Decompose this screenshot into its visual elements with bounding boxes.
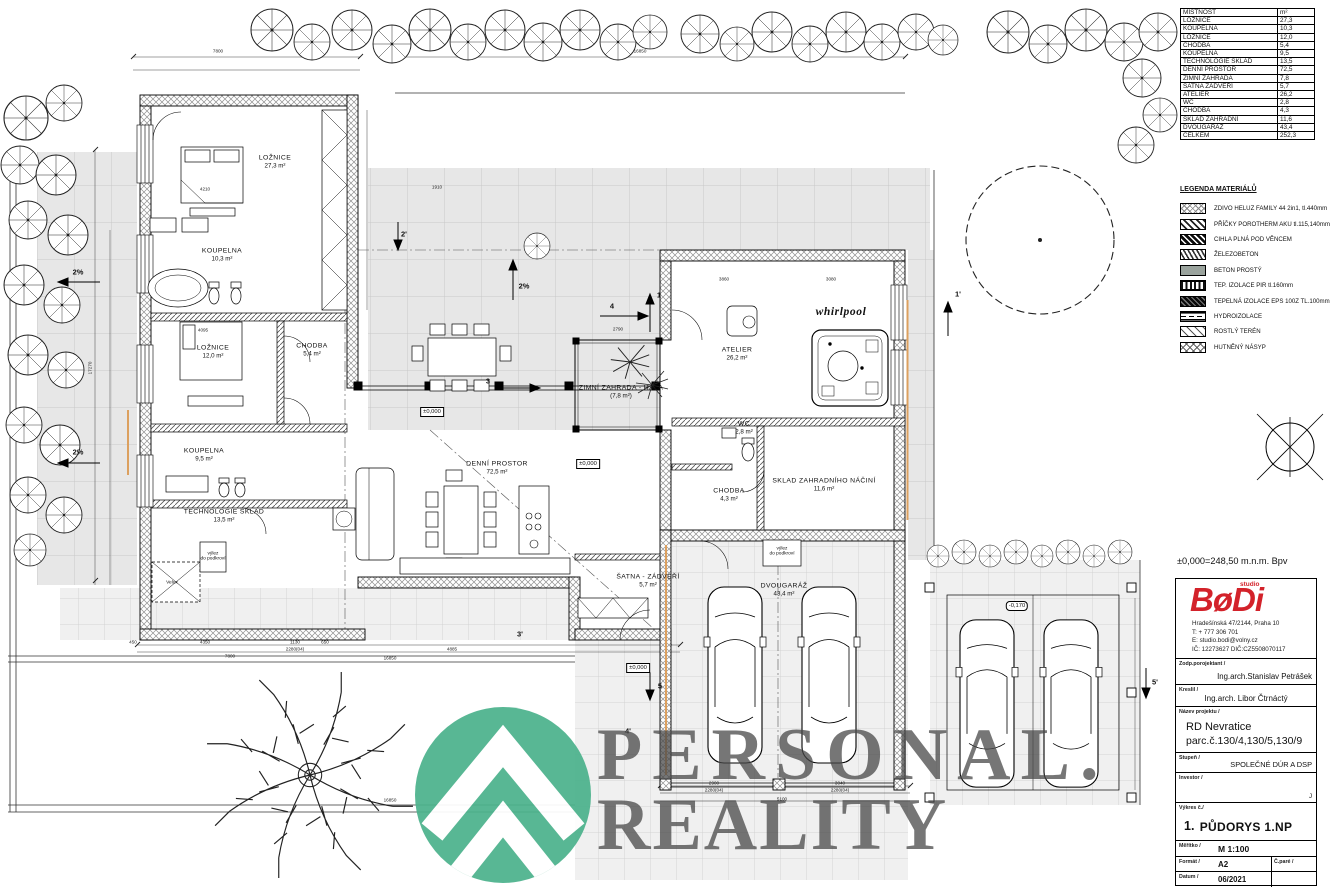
- room-area-table: MÍSTNOST m² LOŽNICE27,3 KOUPELNA10,3 LOŽ…: [1180, 8, 1315, 140]
- legend-title: LEGENDA MATERIÁLŮ: [1180, 186, 1340, 193]
- dimension-label: 17270: [88, 362, 93, 375]
- elevation-marker: ±0,000: [576, 459, 600, 469]
- slope-label: 2%: [73, 448, 84, 457]
- dimension-label: 650: [321, 640, 329, 645]
- titleblock-stage-row: Stupeň / SPOLEČNÉ DÚR A DSP: [1176, 753, 1316, 773]
- section-marker: 5': [1152, 678, 1158, 687]
- section-marker: 3': [517, 630, 523, 639]
- titleblock-format-row: Formát / A2 Č.paré /: [1176, 857, 1316, 872]
- whirlpool-tub: [812, 330, 888, 406]
- legend-item: ROSTLÝ TERÉN: [1180, 324, 1340, 339]
- dimension-label: 3860: [719, 277, 729, 282]
- titleblock-scale-row: Měřítko / M 1:100: [1176, 841, 1316, 857]
- titleblock-investor-row: Investor / J: [1176, 773, 1316, 803]
- section-marker: 3: [486, 377, 490, 386]
- legend-item: ZDIVO HELUZ FAMILY 44 2in1, tl.440mm: [1180, 201, 1340, 216]
- titleblock-designer-row: Zodp.porojektant / Ing.arch.Stanislav Pe…: [1176, 659, 1316, 685]
- slope-label: 2%: [73, 268, 84, 277]
- hatch-swatch-icon: [1180, 311, 1206, 322]
- hatch-swatch-icon: [1180, 296, 1206, 307]
- studio-address: Hradešínská 47/2144, Praha 10 T: + 777 3…: [1192, 620, 1285, 654]
- legend-item: CIHLA PLNÁ POD VĚNCEM: [1180, 232, 1340, 247]
- dimension-label: 16850: [384, 656, 397, 661]
- room-label-loznice-27: LOŽNICE27,3 m²: [259, 155, 291, 170]
- table-header-room: MÍSTNOST: [1181, 9, 1278, 17]
- table-row: DVOUGARÁŽ43,4: [1181, 123, 1315, 131]
- room-label-dvougaraz: DVOUGARÁŽ43,4 m²: [761, 583, 808, 598]
- table-row: LOŽNICE27,3: [1181, 17, 1315, 25]
- hatch-swatch-icon: [1180, 234, 1206, 245]
- titleblock-drawing-row: Výkres č./ 1. PŮDORYS 1.NP: [1176, 803, 1316, 841]
- elevation-marker: ±0,000: [626, 663, 650, 673]
- datum-elevation-note: ±0,000=248,50 m.n.m. Bpv: [1177, 556, 1288, 566]
- legend-item: PŘÍČKY POROTHERM AKU tl.115,140mm: [1180, 216, 1340, 231]
- watermark-line-2: REALITY: [597, 783, 948, 868]
- drawing-title: PŮDORYS 1.NP: [1176, 820, 1316, 834]
- legend-item: BETON PROSTÝ: [1180, 263, 1340, 278]
- large-tree-icon: [966, 166, 1114, 314]
- room-label-sklad: SKLAD ZAHRADNÍHO NÁČINÍ11,6 m²: [772, 478, 875, 493]
- dimension-label: 4350: [200, 640, 210, 645]
- table-row: SKLAD ZAHRADNÍ11,6: [1181, 115, 1315, 123]
- dimension-label: 450: [129, 640, 137, 645]
- table-row: CHODBA5,4: [1181, 41, 1315, 49]
- hatch-swatch-icon: [1180, 280, 1206, 291]
- dimension-label: 7800: [225, 654, 235, 659]
- table-total-row: CELKEM252,3: [1181, 132, 1315, 140]
- dimension-label: 1130: [290, 640, 300, 645]
- legend-item: ŽELEZOBETON: [1180, 247, 1340, 262]
- room-label-loznice-12: LOŽNICE12,0 m²: [197, 345, 229, 360]
- table-row: CHODBA4,3: [1181, 107, 1315, 115]
- legend-item: TEP. IZOLACE PIR tl.160mm: [1180, 278, 1340, 293]
- room-label-wc: WC2,8 m²: [735, 421, 753, 436]
- section-marker: 1: [657, 291, 661, 300]
- section-marker: 4: [610, 302, 614, 311]
- section-marker: 1': [955, 290, 961, 299]
- whirlpool-label: whirlpool: [816, 306, 867, 318]
- room-label-koupelna-10: KOUPELNA10,3 m²: [202, 248, 242, 263]
- section-marker: 2': [401, 230, 407, 239]
- legend-item: TEPELNÁ IZOLACE EPS 100Z TL.100mm: [1180, 293, 1340, 308]
- hatch-swatch-icon: [1180, 265, 1206, 276]
- project-name: RD Nevratice: [1186, 721, 1251, 733]
- table-header-unit: m²: [1278, 9, 1315, 17]
- title-block: BøDi studio Hradešínská 47/2144, Praha 1…: [1175, 578, 1317, 886]
- hatch-swatch-icon: [1180, 326, 1206, 337]
- room-label-koupelna-95: KOUPELNA9,5 m²: [184, 448, 224, 463]
- dimension-label: 16850: [384, 798, 397, 803]
- room-label-denni-prostor: DENNÍ PROSTOR72,5 m²: [466, 461, 528, 476]
- sheet-format: A2: [1218, 860, 1228, 869]
- drawing-date: 06/2021: [1218, 875, 1246, 884]
- dimension-label: 2790: [613, 327, 623, 332]
- hatch-swatch-icon: [1180, 342, 1206, 353]
- table-header-row: MÍSTNOST m²: [1181, 9, 1315, 17]
- elevation-marker: ±0,000: [420, 407, 444, 417]
- table-row: TECHNOLOGIE SKLAD13,5: [1181, 58, 1315, 66]
- table-row: KOUPELNA9,5: [1181, 50, 1315, 58]
- floorplan-sheet: LOŽNICE27,3 m² KOUPELNA10,3 m² LOŽNICE12…: [0, 0, 1340, 891]
- room-label-atelier: ATELIER26,2 m²: [722, 347, 753, 362]
- dimension-label: 3080: [826, 277, 836, 282]
- dimension-label: 4095: [198, 328, 208, 333]
- titleblock-project-row: Název projektu / RD Nevratice parc.č.130…: [1176, 707, 1316, 753]
- table-row: WC2,8: [1181, 99, 1315, 107]
- table-row: ŠATNA ZÁDVEŘÍ5,7: [1181, 82, 1315, 90]
- dimension-label: 7800: [213, 49, 223, 54]
- studio-logo-small: studio: [1240, 581, 1260, 588]
- project-parcel: parc.č.130/4,130/5,130/9: [1186, 735, 1302, 747]
- hatch-swatch-icon: [1180, 203, 1206, 214]
- titleblock-date-row: Datum / 06/2021: [1176, 872, 1316, 887]
- elevation-marker-minus: -0,170: [1006, 601, 1028, 611]
- hatch-swatch-icon: [1180, 219, 1206, 230]
- section-marker: 5: [658, 682, 662, 691]
- velux-label: Velux: [166, 580, 178, 585]
- room-label-zimni-zahrada: ZIMNÍ ZAHRADA - HALA(7,8 m²): [579, 385, 663, 400]
- attic-hatch-label-tech: výlez do podkroví: [200, 552, 225, 563]
- north-arrow-icon: [1257, 414, 1323, 480]
- table-row: DENNÍ PROSTOR72,5: [1181, 66, 1315, 74]
- dimension-label: 16850: [634, 49, 647, 54]
- dimension-label: 4885: [447, 647, 457, 652]
- room-label-chodba-54: CHODBA5,4 m²: [296, 343, 327, 358]
- legend-item: HYDROIZOLACE: [1180, 309, 1340, 324]
- pare-cell: Č.paré /: [1271, 857, 1316, 871]
- personal-reality-logo: [408, 700, 598, 890]
- table-row: LOŽNICE12,0: [1181, 33, 1315, 41]
- titleblock-drawn-row: Kreslil / Ing.arch. Libor Čtrnáctý: [1176, 685, 1316, 707]
- dimension-label: 4210: [200, 187, 210, 192]
- slope-label: 2%: [519, 282, 530, 291]
- table-row: KOUPELNA10,3: [1181, 25, 1315, 33]
- drawing-scale: M 1:100: [1218, 844, 1249, 854]
- room-label-satna: ŠATNA - ZÁDVEŘÍ5,7 m²: [616, 574, 679, 589]
- attic-hatch-label-garage: výlez do podkroví: [769, 547, 794, 558]
- dimension-label: 1910: [432, 185, 442, 190]
- titleblock-logo-section: BøDi studio Hradešínská 47/2144, Praha 1…: [1176, 579, 1316, 659]
- legend-item: HUTNĚNÝ NÁSYP: [1180, 340, 1340, 355]
- table-row: ATELIER26,2: [1181, 91, 1315, 99]
- material-legend: LEGENDA MATERIÁLŮ ZDIVO HELUZ FAMILY 44 …: [1180, 186, 1340, 355]
- branched-tree-icon: [207, 672, 413, 878]
- room-label-chodba-43: CHODBA4,3 m²: [713, 488, 744, 503]
- pare-cell-cont: [1271, 872, 1316, 887]
- room-label-technologie: TECHNOLOGIE SKLAD13,5 m²: [184, 509, 264, 524]
- dimension-label: 2280(04): [286, 647, 304, 652]
- hatch-swatch-icon: [1180, 249, 1206, 260]
- table-row: ZIMNÍ ZAHRADA7,8: [1181, 74, 1315, 82]
